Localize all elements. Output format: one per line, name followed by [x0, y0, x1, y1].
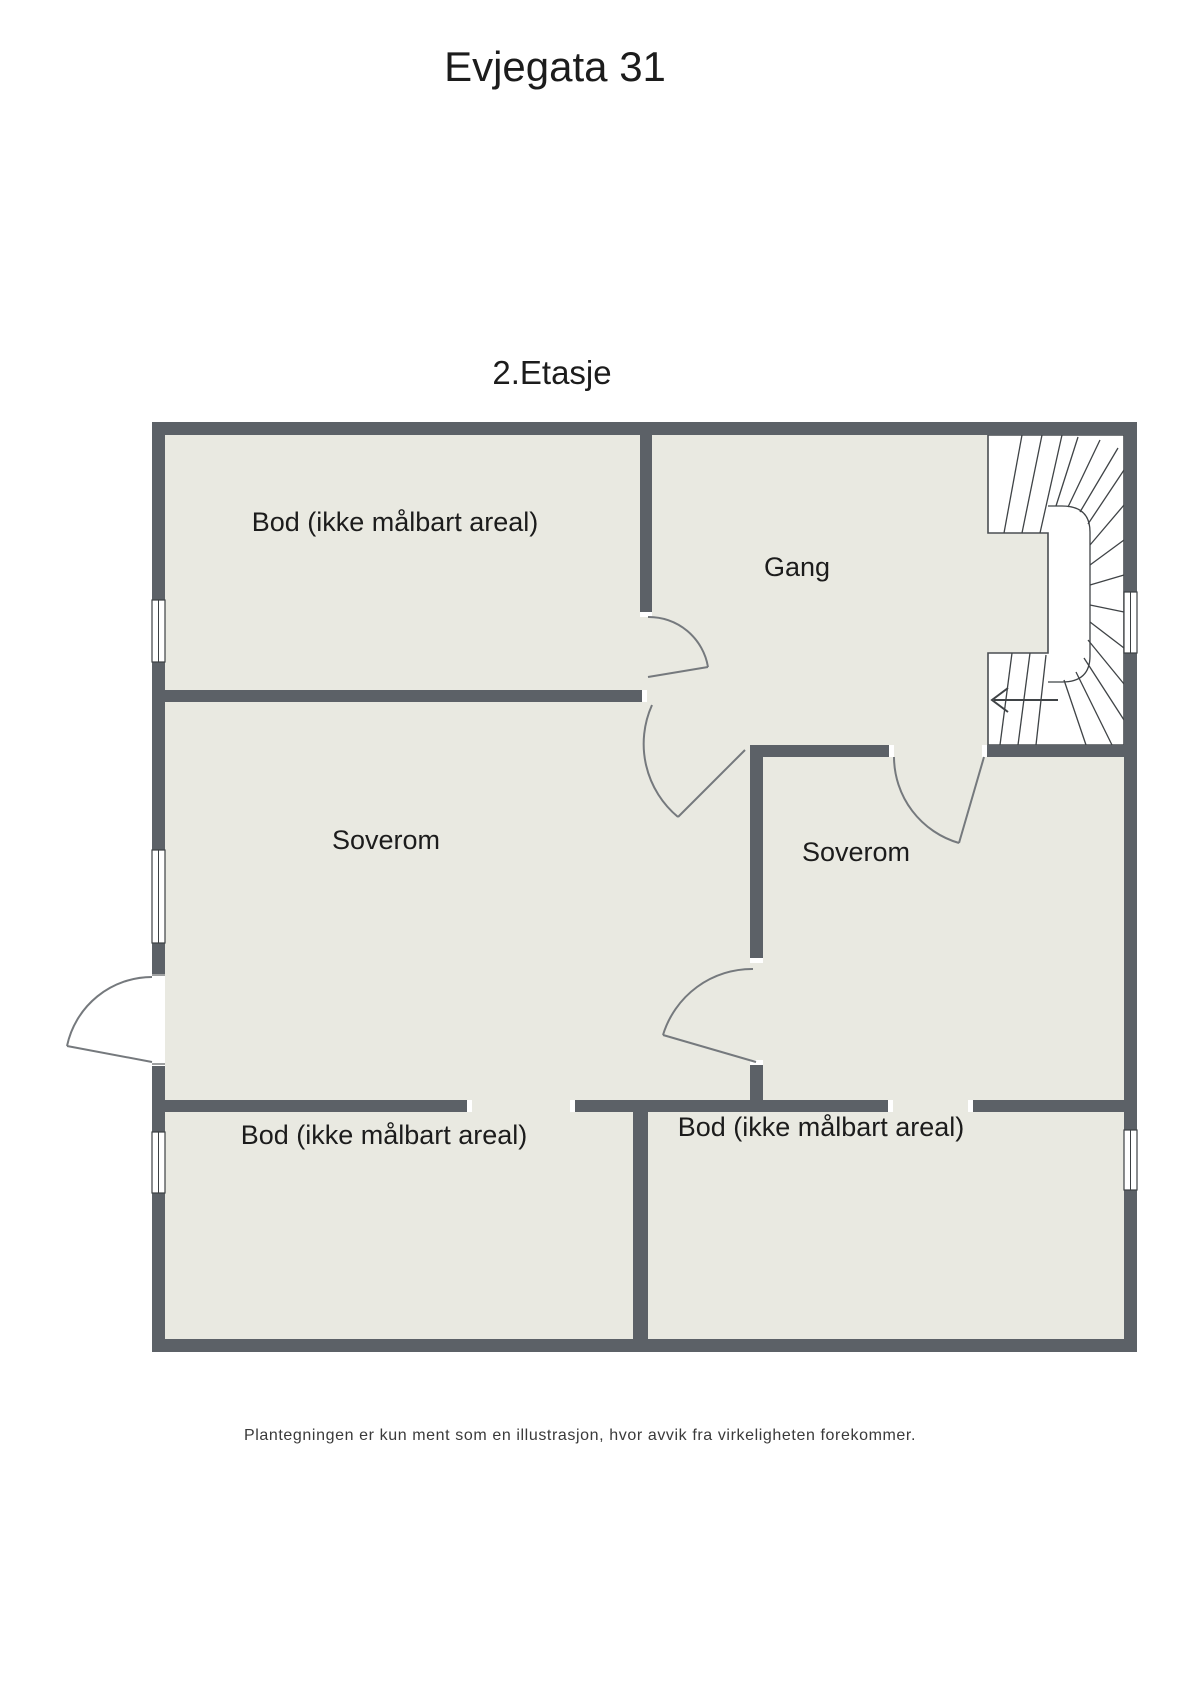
window-left-bottom — [152, 1132, 165, 1193]
room-label-gang: Gang — [764, 552, 830, 582]
wall-middle-bottom-left — [165, 1100, 472, 1112]
wall-outer-top — [152, 422, 1137, 435]
disclaimer-text: Plantegningen er kun ment som en illustr… — [0, 1426, 1160, 1445]
wall-outer-right — [1124, 422, 1137, 1352]
wall-bod-gang — [640, 435, 652, 617]
entry-door-swing — [67, 977, 152, 1062]
room-label-soverom-right: Soverom — [802, 837, 910, 867]
wall-bod-bottom-divider — [633, 1112, 648, 1339]
wall-middle-bottom-right — [968, 1100, 1124, 1112]
window-left-top — [152, 600, 165, 662]
wall-gang-bottom-right — [982, 745, 1124, 757]
entry-door-opening — [152, 974, 165, 1066]
room-label-bod-top-left: Bod (ikke målbart areal) — [252, 507, 539, 537]
room-label-bod-bottom-right: Bod (ikke målbart areal) — [678, 1112, 965, 1142]
window-left-middle — [152, 850, 165, 943]
wall-middle-bottom-center — [570, 1100, 893, 1112]
room-label-soverom-left: Soverom — [332, 825, 440, 855]
window-right-top — [1124, 592, 1137, 653]
room-label-bod-bottom-left: Bod (ikke målbart areal) — [241, 1120, 528, 1150]
floorplan-page: Evjegata 31 2.Etasje — [0, 0, 1200, 1697]
window-right-bottom — [1124, 1130, 1137, 1190]
wall-gang-bottom-left — [750, 745, 894, 757]
wall-bod-soverom — [165, 690, 647, 702]
wall-outer-bottom — [152, 1339, 1137, 1352]
wall-soverom-divider-upper — [750, 745, 763, 963]
